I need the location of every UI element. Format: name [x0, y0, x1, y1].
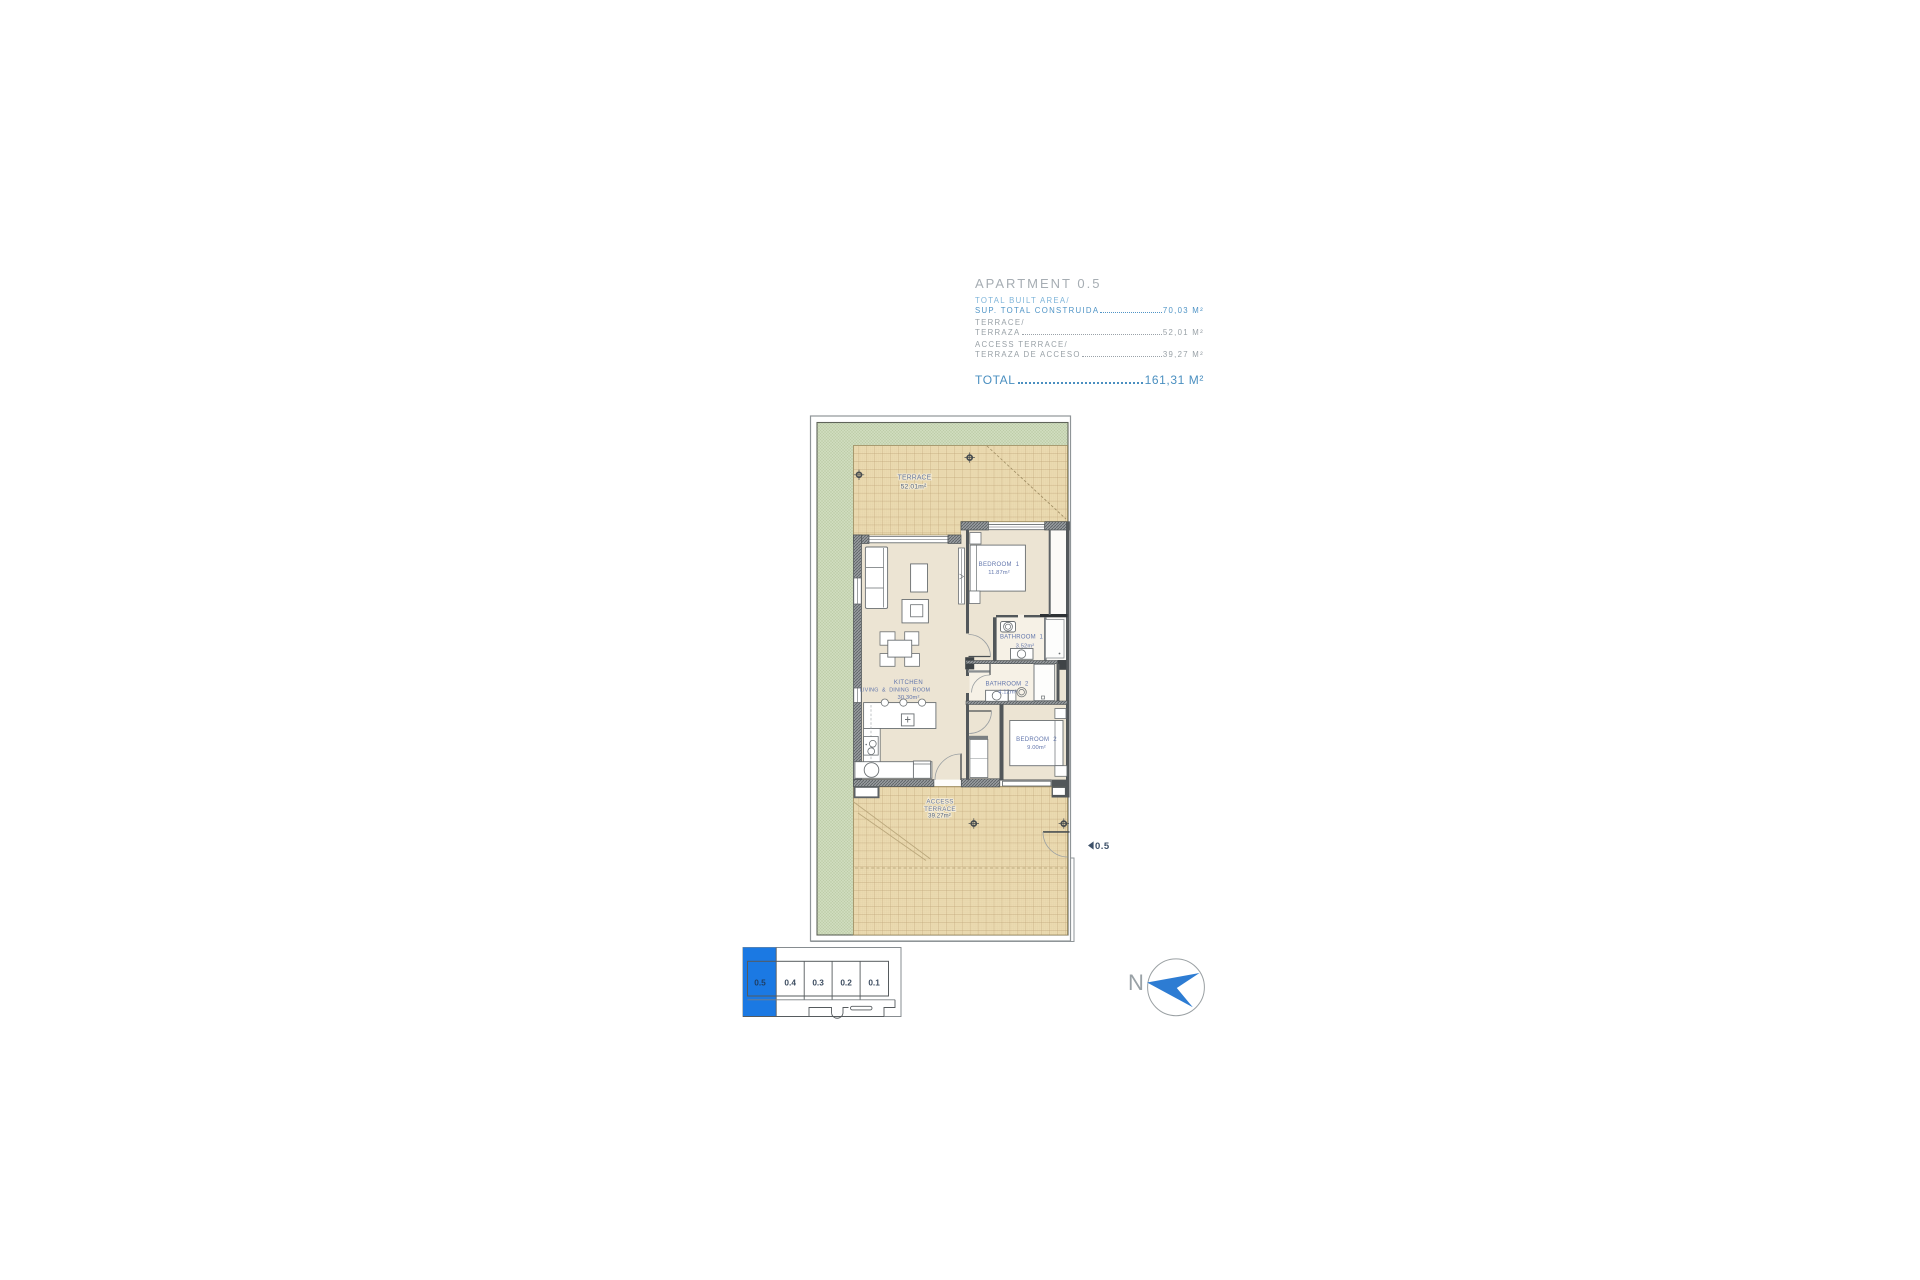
svg-text:KITCHEN: KITCHEN — [894, 680, 923, 686]
svg-text:BATHROOM 2: BATHROOM 2 — [985, 682, 1029, 688]
svg-text:0.3: 0.3 — [812, 978, 824, 988]
svg-text:11.87m²: 11.87m² — [988, 570, 1010, 576]
svg-text:0.5: 0.5 — [754, 978, 766, 988]
svg-text:BEDROOM 2: BEDROOM 2 — [1016, 737, 1057, 743]
svg-text:9.00m²: 9.00m² — [1027, 745, 1046, 751]
svg-text:BATHROOM 1: BATHROOM 1 — [1000, 635, 1044, 641]
svg-text:39.27m²: 39.27m² — [928, 814, 951, 820]
svg-text:30.30m²: 30.30m² — [898, 695, 920, 701]
svg-text:52.01m²: 52.01m² — [901, 484, 927, 491]
svg-text:3.52m²: 3.52m² — [1016, 643, 1035, 649]
svg-text:0.2: 0.2 — [840, 978, 852, 988]
svg-text:BEDROOM 1: BEDROOM 1 — [979, 562, 1020, 568]
svg-text:0.5: 0.5 — [1095, 841, 1110, 852]
svg-text:0.1: 0.1 — [868, 978, 880, 988]
svg-text:N: N — [1128, 970, 1144, 995]
svg-text:TERRACE: TERRACE — [924, 806, 956, 813]
svg-text:4.12m²: 4.12m² — [998, 689, 1017, 695]
svg-text:ACCESS: ACCESS — [926, 799, 953, 806]
svg-text:TERRACE: TERRACE — [898, 475, 932, 482]
svg-text:LIVING & DINING ROOM: LIVING & DINING ROOM — [860, 688, 931, 694]
svg-text:0.4: 0.4 — [784, 978, 796, 988]
